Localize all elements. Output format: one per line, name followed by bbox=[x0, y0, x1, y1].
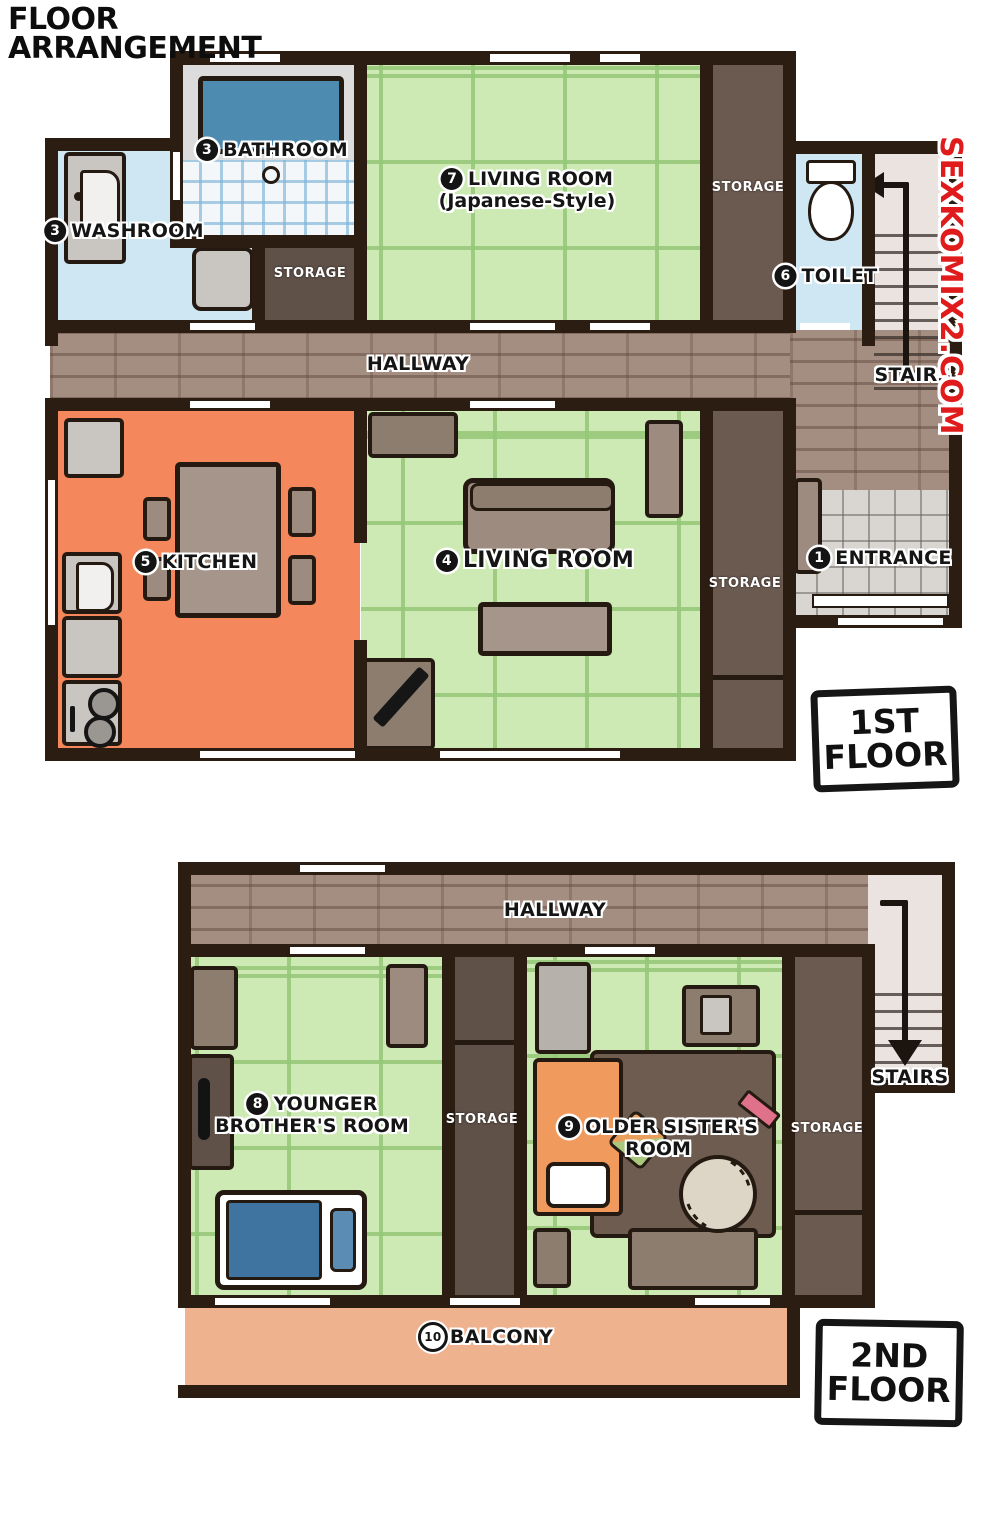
balcony-label: 10 BALCONY bbox=[421, 1325, 553, 1349]
living-room-label: 4 LIVING ROOM bbox=[436, 548, 634, 573]
second-floor-badge: 2ND FLOOR bbox=[814, 1319, 964, 1428]
stove-handle bbox=[70, 706, 75, 732]
wardrobe-handle bbox=[198, 1078, 210, 1140]
floor-arrangement-page: FLOOR ARRANGEMENT bbox=[0, 0, 1001, 1531]
bathroom-label-text: BATHROOM bbox=[223, 139, 348, 161]
washroom-number: 3 bbox=[44, 220, 66, 242]
stairs-arrow-line bbox=[903, 182, 909, 370]
washroom-faucet-dot bbox=[74, 192, 83, 201]
toilet-bowl bbox=[808, 181, 854, 241]
chair bbox=[288, 555, 316, 605]
wall-segment bbox=[178, 862, 955, 875]
wall-segment bbox=[783, 398, 796, 761]
wall-segment bbox=[783, 51, 796, 333]
entrance-label: 1 ENTRANCE bbox=[808, 547, 951, 569]
fridge bbox=[64, 418, 124, 478]
wall-segment bbox=[942, 862, 955, 1093]
living-room-jp-label-text: LIVING ROOM bbox=[468, 168, 613, 190]
door-window-slit bbox=[48, 480, 55, 625]
hallway-label-floor1: HALLWAY bbox=[367, 353, 469, 375]
kitchen-number: 5 bbox=[135, 551, 157, 573]
storage-label: STORAGE bbox=[446, 1112, 518, 1127]
chair bbox=[288, 487, 316, 537]
sofa-backrest bbox=[470, 483, 614, 511]
wall-segment bbox=[170, 51, 183, 151]
stairs-arrow-head-down bbox=[888, 1040, 922, 1066]
sister-room-label-line1: OLDER SISTER'S bbox=[585, 1116, 758, 1138]
kitchen-sink-basin bbox=[76, 562, 114, 612]
low-table bbox=[628, 1228, 758, 1290]
watermark-text: SEXKOMIX2.COM bbox=[933, 136, 968, 435]
desk bbox=[190, 966, 238, 1050]
wall-segment bbox=[862, 141, 875, 346]
door-window-slit bbox=[590, 323, 650, 330]
toilet-number: 6 bbox=[774, 265, 796, 287]
door-window-slit bbox=[215, 1298, 330, 1305]
storage-divider bbox=[708, 675, 788, 680]
toilet-label-text: TOILET bbox=[801, 265, 877, 287]
dresser bbox=[535, 962, 591, 1054]
entrance-number: 1 bbox=[808, 547, 830, 569]
wall-segment bbox=[354, 640, 367, 761]
wall-segment bbox=[45, 748, 783, 761]
wall-segment bbox=[45, 138, 183, 151]
storage-divider bbox=[447, 1040, 519, 1045]
living-room-jp-label: 7 LIVING ROOM (Japanese-Style) bbox=[439, 168, 616, 212]
second-floor-badge-line1: 2ND bbox=[850, 1338, 929, 1374]
door-window-slit bbox=[173, 152, 180, 200]
wall-segment bbox=[45, 320, 796, 333]
genkan-step bbox=[812, 594, 949, 608]
sideboard bbox=[645, 420, 683, 518]
storage-label: STORAGE bbox=[709, 576, 781, 591]
wall-segment bbox=[354, 51, 367, 333]
desk-item bbox=[700, 995, 732, 1035]
wall-segment bbox=[787, 1295, 800, 1398]
stove-burner-2 bbox=[84, 716, 116, 748]
baseball-cushion bbox=[676, 1152, 760, 1236]
bed-pillow bbox=[330, 1208, 356, 1272]
door-window-slit bbox=[300, 865, 385, 872]
storage-label: STORAGE bbox=[791, 1121, 863, 1136]
stairs-arrow-bar bbox=[880, 182, 909, 188]
wall-segment bbox=[45, 398, 796, 411]
first-floor-badge: 1ST FLOOR bbox=[810, 685, 959, 792]
living-room-number: 4 bbox=[436, 550, 458, 572]
kitchen-label: 5 KITCHEN bbox=[135, 551, 258, 573]
wall-segment bbox=[252, 242, 265, 333]
desk bbox=[386, 964, 428, 1048]
page-title-line2: ARRANGEMENT bbox=[8, 35, 261, 64]
living-room-label-text: LIVING ROOM bbox=[463, 548, 634, 573]
door-window-slit bbox=[490, 54, 570, 62]
wall-segment bbox=[178, 1385, 800, 1398]
brother-room-label: 8 YOUNGER BROTHER'S ROOM bbox=[215, 1093, 409, 1137]
living-room-jp-sublabel: (Japanese-Style) bbox=[439, 190, 616, 212]
wall-segment bbox=[178, 862, 191, 1308]
door-window-slit bbox=[440, 751, 620, 758]
brother-room-number: 8 bbox=[247, 1093, 269, 1115]
first-floor-badge-line2: FLOOR bbox=[823, 737, 948, 776]
bathroom-drain bbox=[262, 166, 280, 184]
entrance-label-text: ENTRANCE bbox=[835, 547, 951, 569]
stairs-label-floor2: STAIRS bbox=[871, 1066, 948, 1088]
storage-label: STORAGE bbox=[274, 266, 346, 281]
kitchen-label-text: KITCHEN bbox=[162, 551, 258, 573]
balcony-number: 10 bbox=[421, 1325, 445, 1349]
chair bbox=[143, 497, 171, 541]
door-window-slit bbox=[585, 947, 655, 954]
kitchen-counter bbox=[62, 616, 122, 678]
washing-machine bbox=[192, 247, 254, 311]
dining-table bbox=[175, 462, 281, 618]
wall-segment bbox=[354, 398, 367, 543]
door-window-slit bbox=[450, 1298, 520, 1305]
stove-burner-1 bbox=[88, 688, 120, 720]
coffee-table bbox=[478, 602, 612, 656]
door-window-slit bbox=[290, 947, 365, 954]
door-window-slit bbox=[800, 323, 850, 330]
door-window-slit bbox=[190, 401, 270, 408]
brother-room-label-line2: BROTHER'S ROOM bbox=[215, 1115, 409, 1137]
door-window-slit bbox=[695, 1298, 770, 1305]
bathroom-label: 3 BATHROOM bbox=[196, 139, 348, 161]
washroom-label: 3 WASHROOM bbox=[44, 220, 204, 242]
storage-strip-top-floor bbox=[708, 64, 788, 330]
sister-room-label-line2: ROOM bbox=[558, 1138, 758, 1160]
brother-room-label-line1: YOUNGER bbox=[274, 1093, 378, 1115]
door-window-slit bbox=[470, 323, 555, 330]
door-window-slit bbox=[200, 751, 355, 758]
second-floor-badge-line2: FLOOR bbox=[826, 1372, 951, 1408]
wall-segment bbox=[862, 944, 875, 1308]
door-window-slit bbox=[600, 54, 640, 62]
door-window-slit bbox=[838, 618, 943, 625]
balcony-label-text: BALCONY bbox=[450, 1326, 553, 1348]
storage-label: STORAGE bbox=[712, 180, 784, 195]
tv-stand bbox=[368, 412, 458, 458]
bed-pillow-white bbox=[546, 1162, 610, 1208]
bathroom-number: 3 bbox=[196, 139, 218, 161]
bedside-unit bbox=[533, 1228, 571, 1288]
stairs-arrow-line bbox=[902, 900, 908, 1042]
living-room-jp-number: 7 bbox=[441, 168, 463, 190]
washroom-label-text: WASHROOM bbox=[71, 220, 204, 242]
storage-divider bbox=[787, 1210, 867, 1215]
wall-segment bbox=[45, 138, 58, 346]
hallway-label-floor2: HALLWAY bbox=[504, 899, 606, 921]
door-window-slit bbox=[470, 401, 555, 408]
bed-blanket bbox=[226, 1200, 322, 1280]
page-title: FLOOR ARRANGEMENT bbox=[8, 6, 261, 63]
sister-room-label: 9 OLDER SISTER'S ROOM bbox=[558, 1116, 758, 1160]
toilet-label: 6 TOILET bbox=[774, 265, 877, 287]
sister-room-number: 9 bbox=[558, 1116, 580, 1138]
door-window-slit bbox=[190, 323, 255, 330]
